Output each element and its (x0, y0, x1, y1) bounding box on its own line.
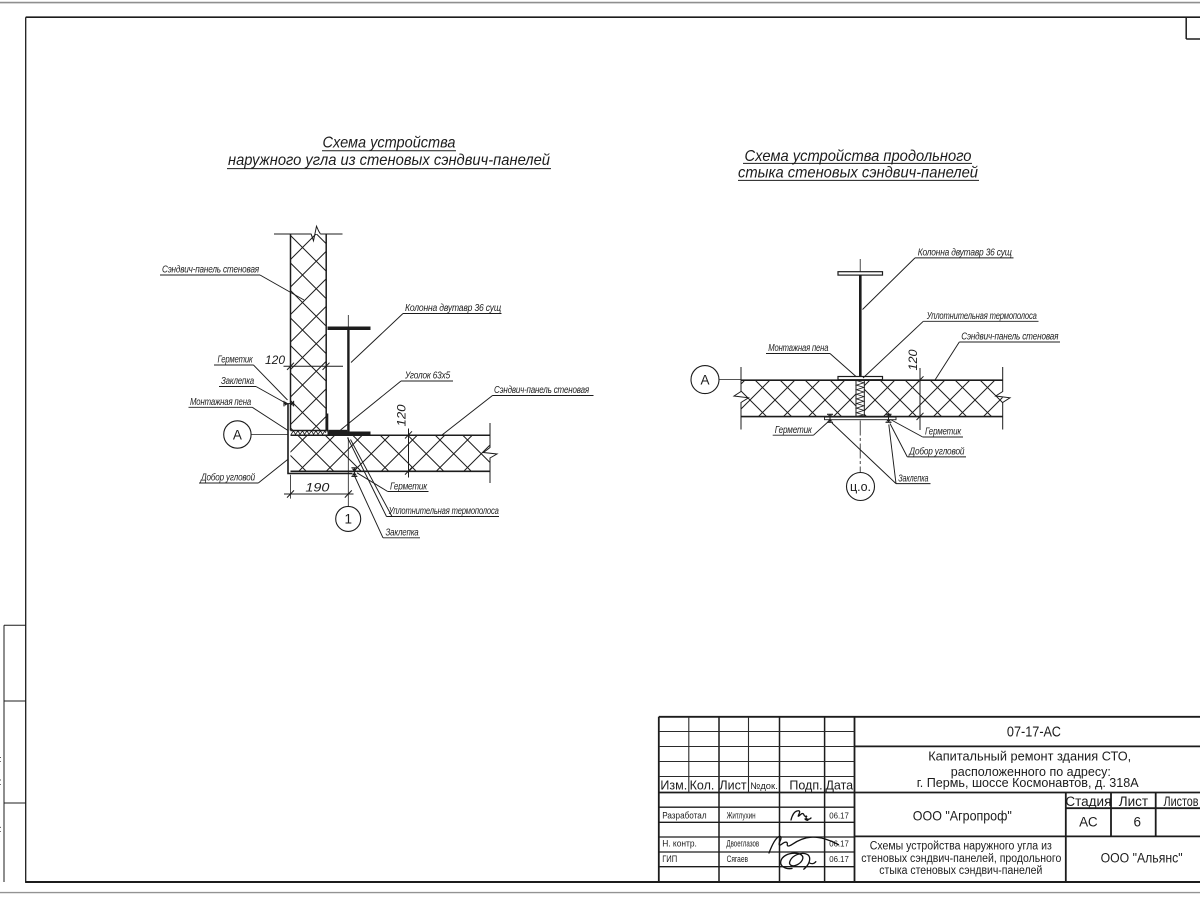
svg-text:АС: АС (1079, 815, 1098, 830)
svg-text:Инв. № подл.: Инв. № подл. (0, 819, 1, 875)
svg-text:Сэндвич-панель стеновая: Сэндвич-панель стеновая (162, 265, 260, 276)
svg-text:Подп.: Подп. (789, 779, 822, 793)
svg-text:Двоеглазов: Двоеглазов (726, 839, 759, 849)
svg-text:Добор угловой: Добор угловой (908, 446, 964, 458)
svg-text:Герметик: Герметик (390, 481, 428, 492)
svg-text:Уплотнительная термополоса: Уплотнительная термополоса (388, 506, 499, 517)
svg-text:стыка стеновых сэндвич-панелей: стыка стеновых сэндвич-панелей (738, 164, 978, 181)
svg-text:Заклепка: Заклепка (386, 528, 420, 539)
svg-text:А: А (233, 427, 242, 442)
svg-text:Герметик: Герметик (925, 427, 962, 438)
svg-text:120: 120 (265, 353, 285, 367)
svg-text:А: А (700, 372, 709, 387)
svg-text:Колонна двутавр 36 сущ: Колонна двутавр 36 сущ (918, 248, 1013, 259)
svg-text:Житлухин: Житлухин (727, 810, 756, 820)
svg-text:Сэндвич-панель стеновая: Сэндвич-панель стеновая (494, 385, 590, 396)
svg-text:Схемы устройства наружного угл: Схемы устройства наружного угла из (870, 840, 1052, 852)
svg-text:Колонна двутавр 36 сущ: Колонна двутавр 36 сущ (405, 303, 502, 314)
svg-text:06.17: 06.17 (829, 854, 849, 864)
svg-text:№док.: №док. (750, 780, 777, 791)
svg-text:г. Пермь, шоссе Космонавтов, д: г. Пермь, шоссе Космонавтов, д. 318А (917, 775, 1139, 790)
svg-text:Уплотнительная термополоса: Уплотнительная термополоса (926, 311, 1037, 322)
svg-text:Кол.: Кол. (690, 779, 715, 793)
svg-text:120: 120 (395, 404, 409, 426)
svg-text:Изм.: Изм. (660, 779, 687, 793)
svg-text:Герметик: Герметик (218, 355, 254, 366)
svg-text:ООО "Агропроф": ООО "Агропроф" (913, 808, 1012, 824)
svg-text:Уголок 63х5: Уголок 63х5 (404, 371, 450, 382)
svg-text:06.17: 06.17 (829, 810, 849, 820)
svg-text:Стадия: Стадия (1065, 794, 1111, 809)
svg-text:06.17: 06.17 (829, 839, 849, 849)
svg-text:Н. контр.: Н. контр. (662, 839, 697, 849)
svg-text:Герметик: Герметик (775, 425, 813, 436)
svg-text:Схема устройства продольного: Схема устройства продольного (745, 148, 972, 165)
svg-text:Добор угловой: Добор угловой (200, 472, 255, 484)
svg-text:07-17-АС: 07-17-АС (1007, 725, 1061, 741)
svg-text:Лист: Лист (1119, 794, 1148, 809)
svg-text:Сягаев: Сягаев (727, 854, 749, 864)
svg-text:Капитальный ремонт здания СТО,: Капитальный ремонт здания СТО, (928, 749, 1131, 764)
svg-text:Взам. инв. №: Взам. инв. № (0, 638, 1, 694)
svg-text:Подп. и дата: Подп. и дата (0, 743, 1, 796)
svg-text:1: 1 (344, 512, 352, 527)
svg-text:Монтажная пена: Монтажная пена (190, 397, 251, 408)
svg-text:120: 120 (906, 349, 920, 370)
svg-text:Лист: Лист (719, 779, 746, 793)
svg-text:Листов: Листов (1164, 794, 1199, 809)
svg-text:Заклепка: Заклепка (221, 376, 255, 387)
svg-text:Схема устройства: Схема устройства (323, 135, 456, 152)
svg-text:Заклепка: Заклепка (898, 473, 928, 484)
svg-text:стеновых сэндвич-панелей, прод: стеновых сэндвич-панелей, продольного (861, 853, 1061, 865)
svg-text:Сэндвич-панель стеновая: Сэндвич-панель стеновая (961, 332, 1059, 343)
svg-text:наружного угла из стеновых сэн: наружного угла из стеновых сэндвич-панел… (228, 152, 550, 169)
svg-text:190: 190 (305, 481, 329, 495)
svg-text:ООО "Альянс": ООО "Альянс" (1101, 851, 1183, 866)
svg-text:6: 6 (1134, 815, 1142, 830)
svg-text:стыка стеновых сэндвич-панелей: стыка стеновых сэндвич-панелей (879, 865, 1042, 877)
svg-text:Монтажная пена: Монтажная пена (768, 343, 828, 354)
svg-text:ГИП: ГИП (662, 854, 677, 864)
svg-text:Разработал: Разработал (662, 810, 706, 820)
svg-text:ц.о.: ц.о. (850, 480, 871, 494)
svg-text:Дата: Дата (825, 779, 853, 793)
